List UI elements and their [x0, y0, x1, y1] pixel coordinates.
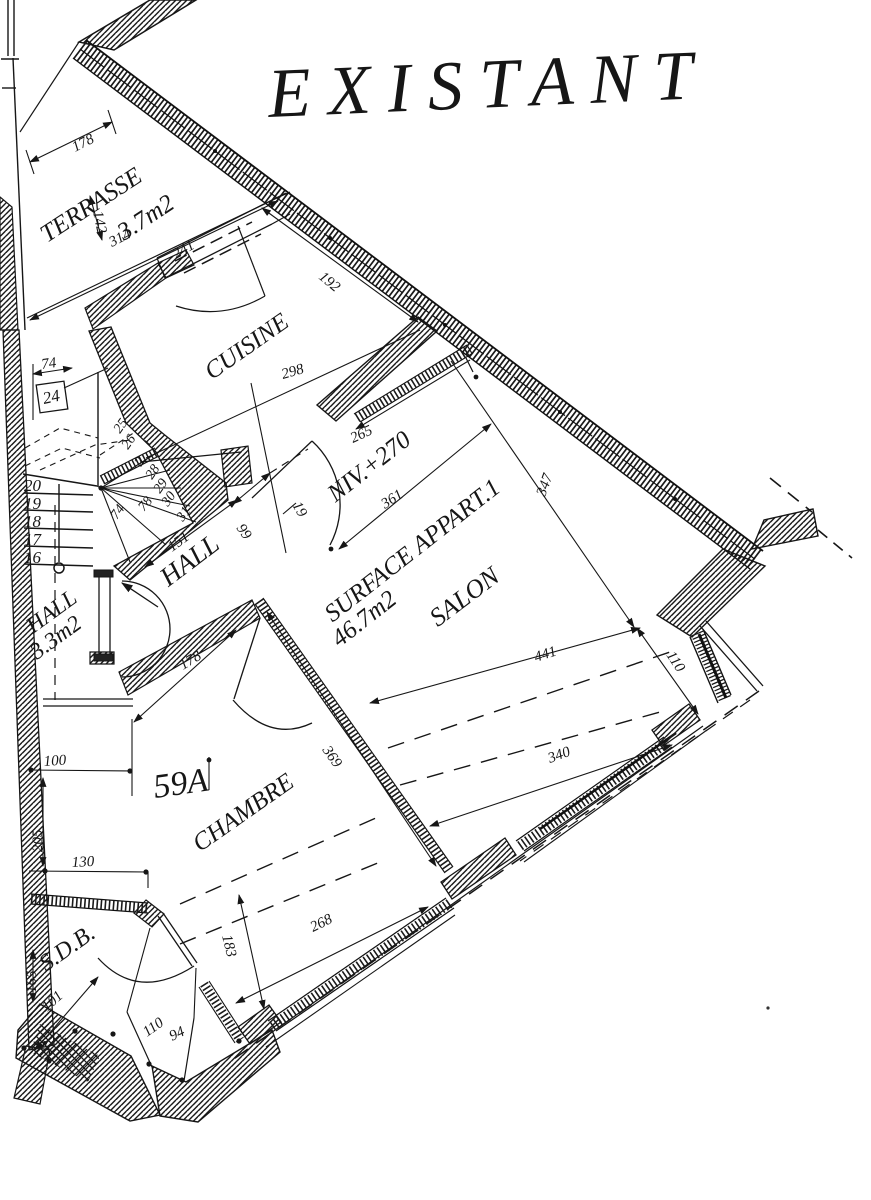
svg-text:19: 19 [24, 494, 42, 513]
svg-text:18: 18 [24, 512, 42, 531]
svg-text:165: 165 [24, 970, 40, 993]
svg-text:16: 16 [24, 548, 42, 567]
svg-text:20: 20 [24, 476, 42, 495]
svg-text:100: 100 [43, 752, 67, 770]
svg-text:130: 130 [71, 854, 95, 871]
svg-text:74: 74 [40, 355, 58, 373]
svg-text:59A: 59A [151, 762, 211, 806]
svg-text:17: 17 [24, 530, 43, 549]
svg-text:205: 205 [30, 829, 46, 852]
